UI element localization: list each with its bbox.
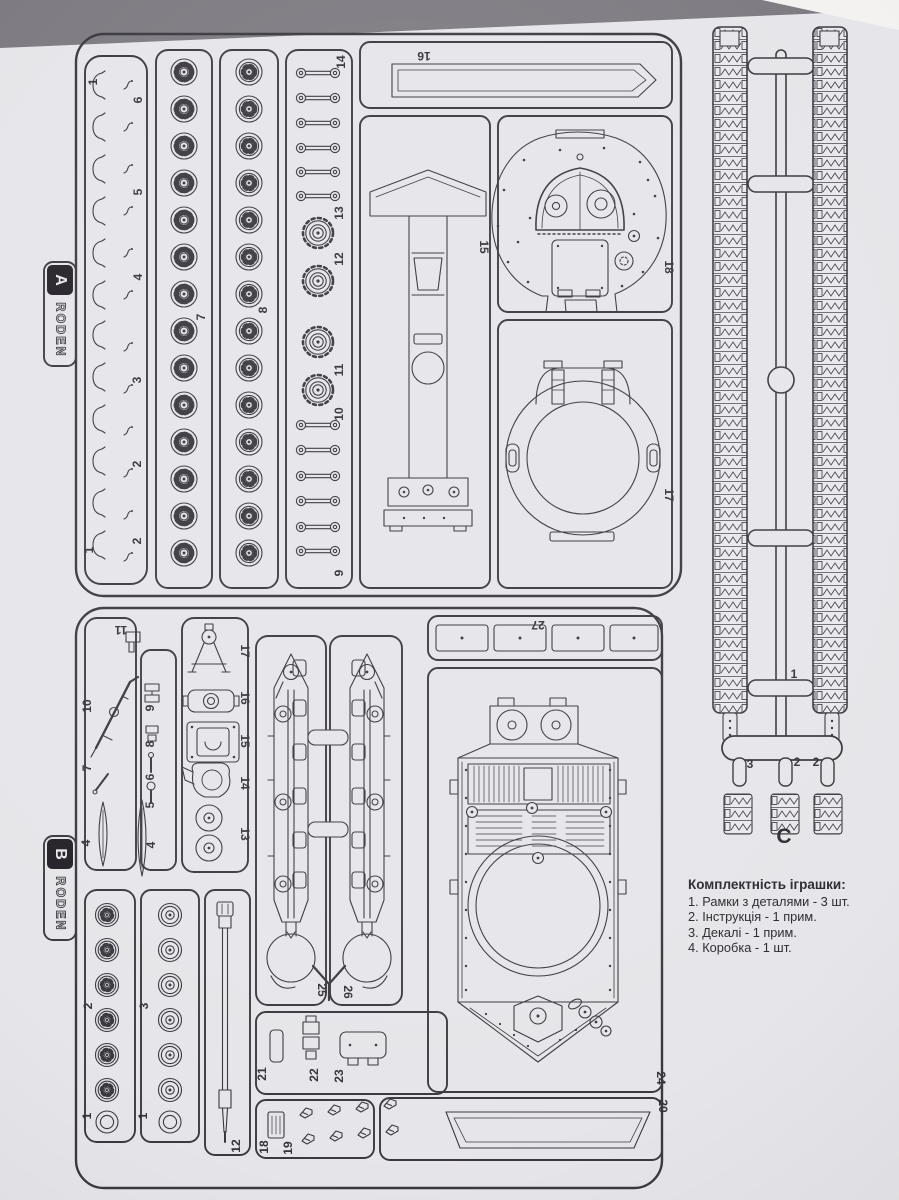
runner-hanger xyxy=(733,758,746,786)
brand-logo-text: RODEN xyxy=(54,302,68,357)
part-number-label: 16 xyxy=(417,49,431,63)
part-number-label: 5 xyxy=(131,188,145,195)
part-number-label: 18 xyxy=(662,260,676,274)
part-number-label: 12 xyxy=(229,1139,243,1153)
part-number-label: 7 xyxy=(80,764,94,771)
kit-contents-item: 3. Декалі - 1 прим. xyxy=(688,925,898,940)
sprue-c-letter: C xyxy=(776,825,791,848)
part-number-label: 24 xyxy=(654,1071,668,1085)
runner-hanger xyxy=(821,758,834,786)
part-number-label: 6 xyxy=(143,773,157,780)
part-number-label: 19 xyxy=(281,1141,295,1155)
part-number-label: 4 xyxy=(79,839,93,846)
part-number-label: 1 xyxy=(82,546,96,553)
part-number-label: 14 xyxy=(238,776,252,790)
part-number-label: 17 xyxy=(238,644,252,658)
part-number-label: 18 xyxy=(257,1140,271,1154)
part-number-label: 13 xyxy=(332,206,346,220)
part-number-label: 15 xyxy=(238,734,252,748)
part-number-label: 2 xyxy=(794,755,801,769)
scanned-instruction-photo: A RODEN xyxy=(0,0,899,1200)
part-number-label: 15 xyxy=(477,240,491,254)
runner-hanger xyxy=(779,758,792,786)
part-number-label: 10 xyxy=(80,699,94,713)
track-left xyxy=(713,27,747,741)
kit-contents-item: 1. Рамки з деталями - 3 шт. xyxy=(688,894,898,909)
part-number-label: 1 xyxy=(791,667,798,681)
track-right xyxy=(813,27,847,741)
part-number-label: 21 xyxy=(255,1067,269,1081)
part-number-label: 2 xyxy=(130,537,144,544)
part-number-label: 14 xyxy=(334,55,348,69)
part-number-label: 1 xyxy=(136,1112,150,1119)
part-number-label: 4 xyxy=(131,273,145,280)
runner-crossbar xyxy=(748,58,814,74)
part-number-label: 11 xyxy=(332,363,346,376)
kit-contents-item: 4. Коробка - 1 шт. xyxy=(688,940,898,955)
part-number-label: 25 xyxy=(315,983,329,997)
runner-crossbar xyxy=(748,176,814,192)
runner-crossbar xyxy=(748,530,814,546)
part-number-label: 12 xyxy=(332,252,346,266)
brand-logo-text: RODEN xyxy=(54,876,68,931)
runner-spine xyxy=(776,50,786,748)
part-number-label: 7 xyxy=(194,313,208,320)
part-number-label: 5 xyxy=(143,801,157,808)
part-number-label: 2 xyxy=(81,1002,95,1009)
kit-contents-title: Комплектність іграшки: xyxy=(688,877,898,892)
part-number-label: 9 xyxy=(332,569,346,576)
part-number-label: 8 xyxy=(143,740,157,747)
runner-crossbar xyxy=(748,680,814,696)
part-number-label: 13 xyxy=(238,827,252,841)
part-number-label: 22 xyxy=(307,1068,321,1082)
part-number-label: 10 xyxy=(332,407,346,421)
part-number-label: 8 xyxy=(256,306,270,313)
part-number-label: 16 xyxy=(238,691,252,705)
part-number-label: 20 xyxy=(656,1099,670,1113)
part-number-label: 27 xyxy=(531,618,545,632)
sprue-c: 1 3 2 2 C xyxy=(713,27,847,848)
sprue-b-letter: B xyxy=(52,848,69,860)
sprue-a-letter: A xyxy=(52,274,69,286)
part-number-label: 23 xyxy=(332,1069,346,1083)
part-number-label: 9 xyxy=(143,704,157,711)
part-number-label: 1 xyxy=(80,1112,94,1119)
part-number-label: 1 xyxy=(86,78,100,85)
part-number-label: 3 xyxy=(747,757,754,771)
kit-contents-block: Комплектність іграшки: 1. Рамки з деталя… xyxy=(688,877,898,956)
runner-bridge xyxy=(308,822,348,837)
part-number-label: 3 xyxy=(130,376,144,383)
runner-bottom-bar xyxy=(722,736,842,760)
part-number-label: 6 xyxy=(131,96,145,103)
part-number-label: 26 xyxy=(341,985,355,999)
part-number-label: 4 xyxy=(144,841,158,848)
part-number-label: 2 xyxy=(813,755,820,769)
part-number-label: 11 xyxy=(114,623,127,637)
part-number-label: 2 xyxy=(130,460,144,467)
runner-boss xyxy=(768,367,794,393)
part-number-label: 3 xyxy=(137,1002,151,1009)
part-number-label: 17 xyxy=(662,488,676,502)
kit-contents-item: 2. Інструкція - 1 прим. xyxy=(688,909,898,924)
runner-bridge xyxy=(308,730,348,745)
sprue-diagram-sheet: A RODEN xyxy=(0,0,899,1200)
